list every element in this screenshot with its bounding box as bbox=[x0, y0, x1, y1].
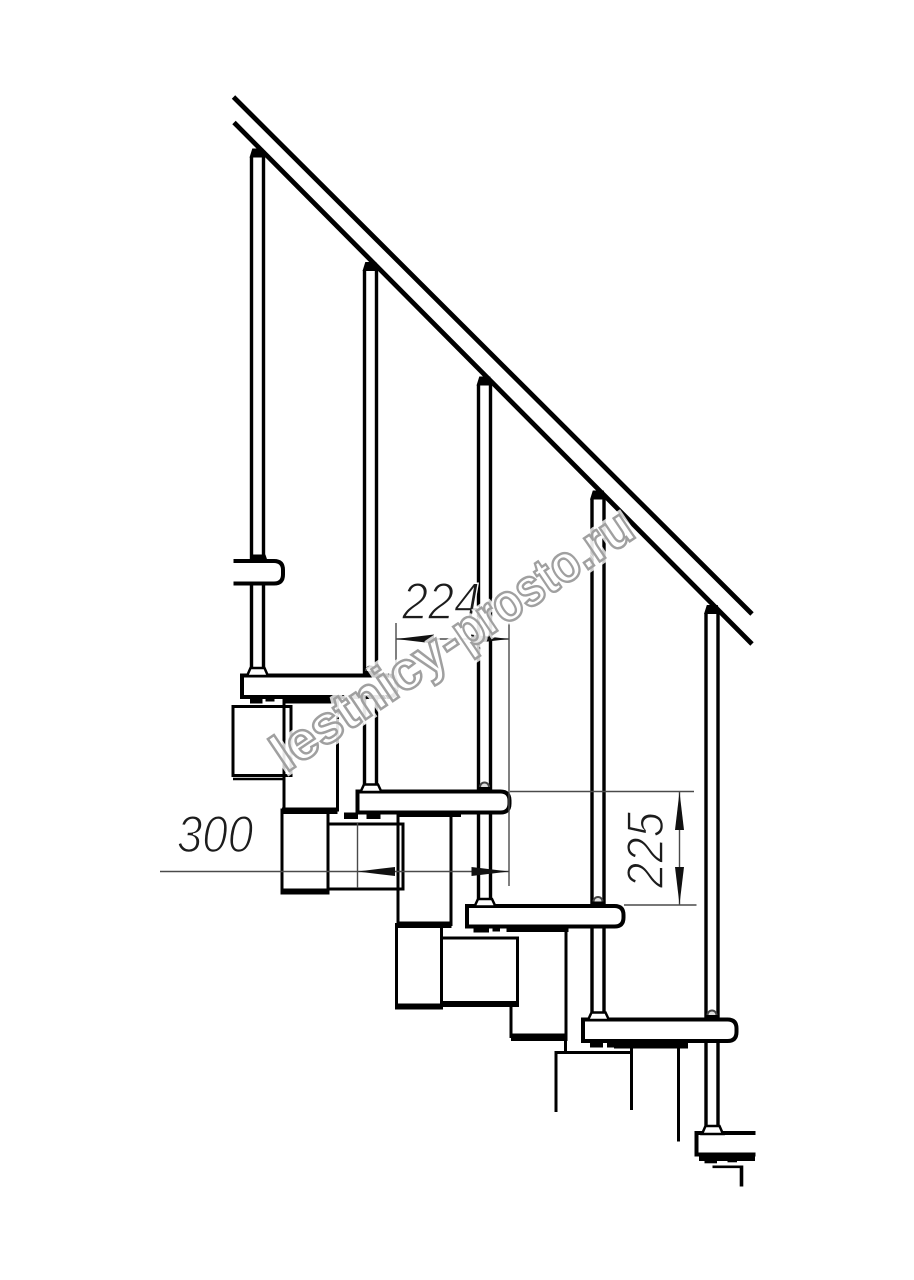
svg-text:300: 300 bbox=[177, 806, 253, 863]
svg-text:225: 225 bbox=[617, 811, 674, 889]
